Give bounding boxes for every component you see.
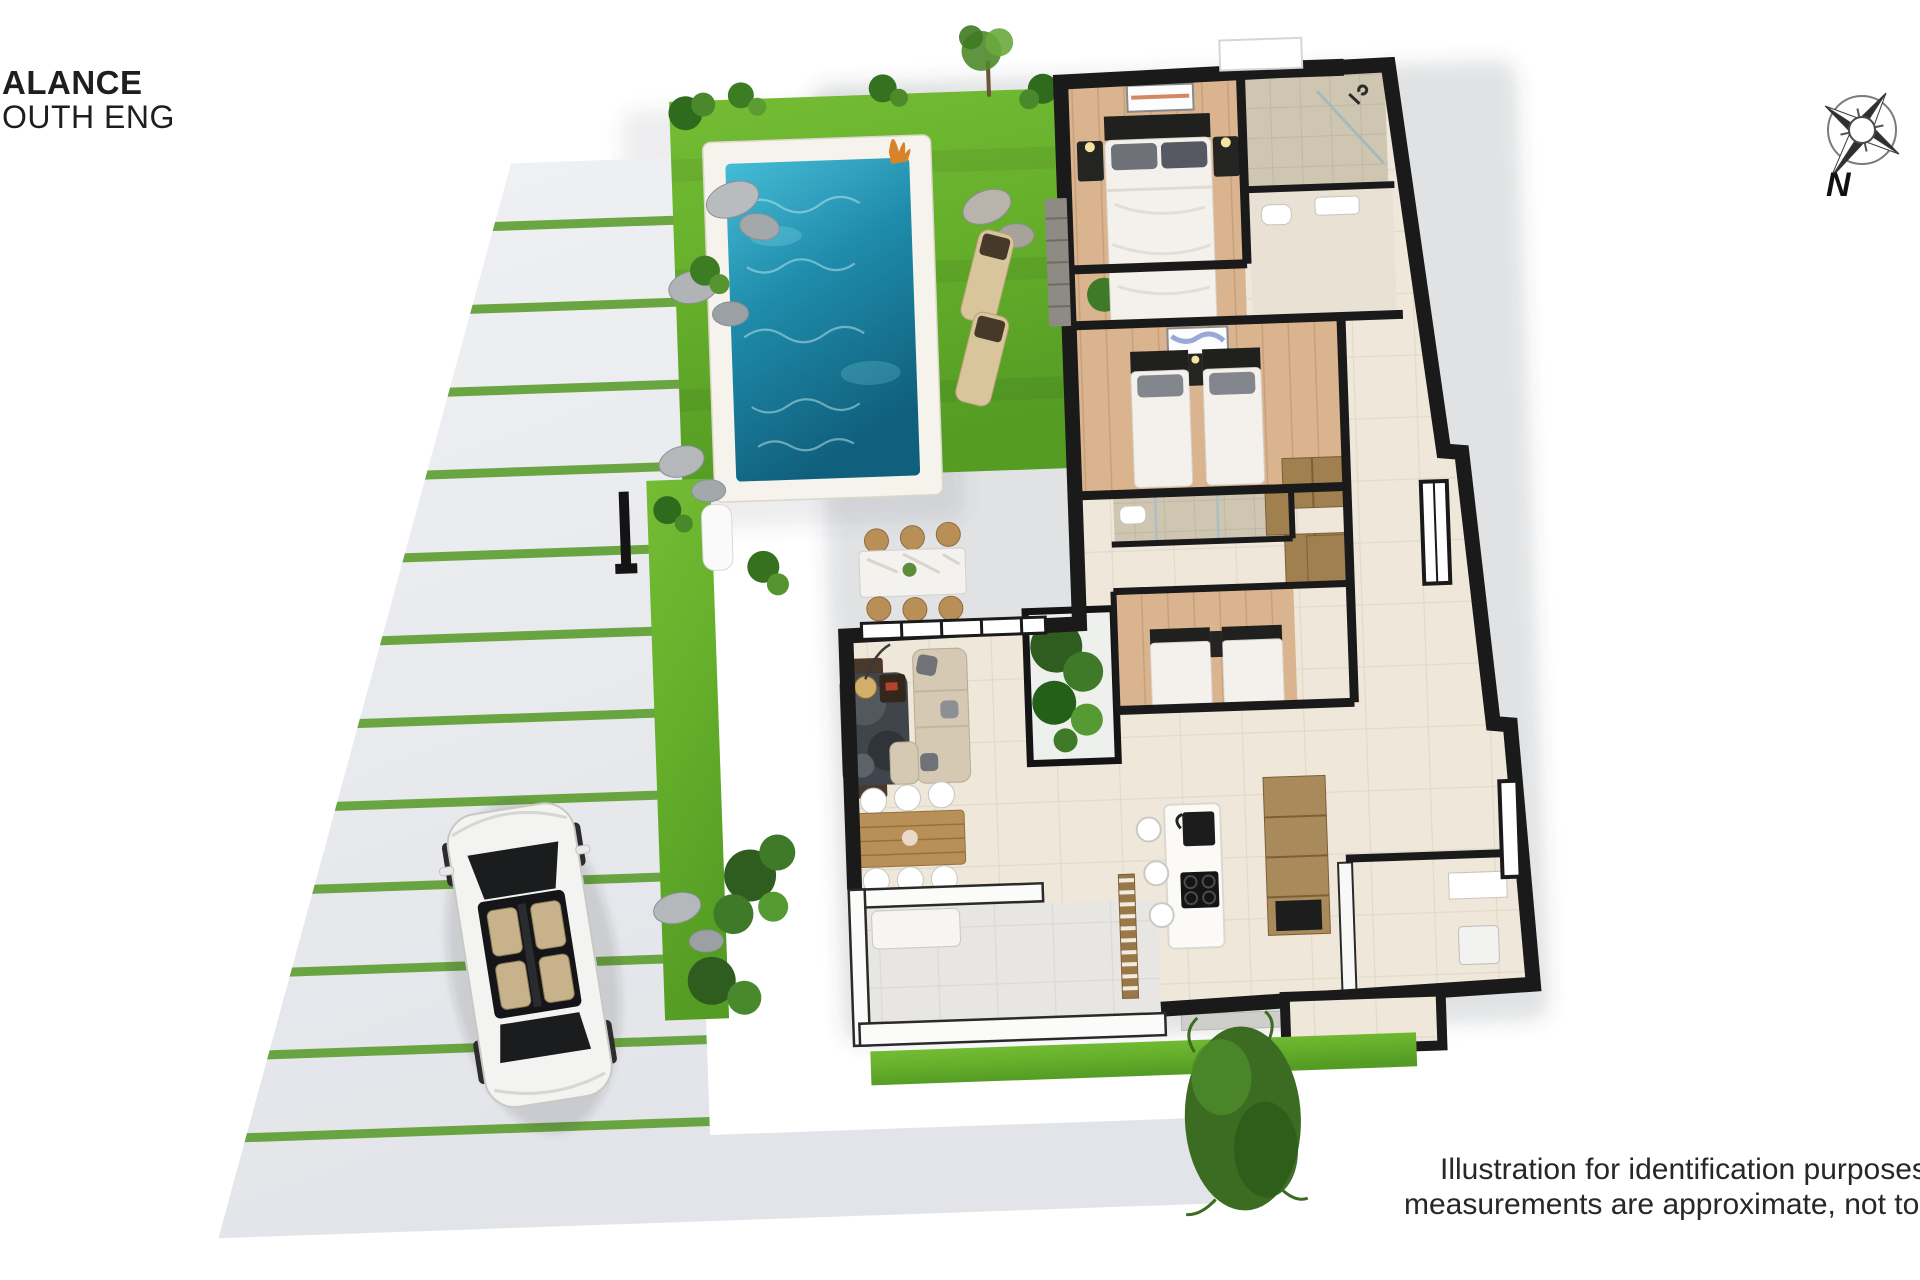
bedroom-3-bed: [1150, 627, 1213, 707]
side-window: [1499, 781, 1520, 878]
dining-chair: [928, 781, 955, 808]
bar-stool: [1136, 817, 1161, 842]
twin-bed: [1202, 347, 1265, 485]
bar-stool: [1149, 903, 1174, 928]
outdoor-bench: [871, 908, 960, 949]
plan-scene: [119, 6, 1556, 1250]
patio-chair: [900, 525, 925, 550]
patio-chair: [936, 522, 961, 547]
floor-plan-page: ALANCE OUTH ENG: [0, 0, 1920, 1280]
washer: [1458, 925, 1499, 964]
compass-rose-icon: N: [1825, 93, 1899, 204]
nightstand: [1210, 631, 1223, 657]
kitchen-tall-cabinet: [1263, 775, 1330, 935]
laundry-counter: [1448, 871, 1507, 899]
hall-wardrobe: [1307, 534, 1351, 585]
patio-chair: [902, 597, 927, 622]
pool-water: [725, 157, 920, 481]
oven: [1275, 900, 1322, 932]
patio-chair: [938, 596, 963, 621]
side-mirror: [575, 845, 590, 855]
disclaimer-line1: Illustration for identification purposes…: [1440, 1152, 1920, 1187]
pool-chair: [701, 504, 733, 571]
dining-chair: [894, 784, 921, 811]
twin-bed: [1130, 350, 1193, 488]
stone-accent: [1045, 198, 1071, 327]
entrance-canopy: [1219, 38, 1302, 71]
disclaimer: Illustration for identification purposes…: [1404, 1152, 1920, 1222]
patio-chair: [864, 528, 889, 553]
indoor-dining-table: [853, 781, 967, 895]
east-window: [1421, 481, 1451, 584]
disclaimer-line2: measurements are approximate, not to sca: [1404, 1187, 1920, 1222]
floor-plan-illustration: N: [0, 0, 1920, 1280]
side-mirror: [439, 866, 454, 876]
patio-chair: [866, 596, 891, 621]
north-label: N: [1826, 166, 1852, 204]
outdoor-dining-table: [858, 522, 967, 624]
sink: [1182, 811, 1215, 846]
bedroom-3-bed: [1222, 625, 1285, 705]
dining-chair: [860, 788, 887, 815]
bar-stool: [1144, 861, 1169, 886]
